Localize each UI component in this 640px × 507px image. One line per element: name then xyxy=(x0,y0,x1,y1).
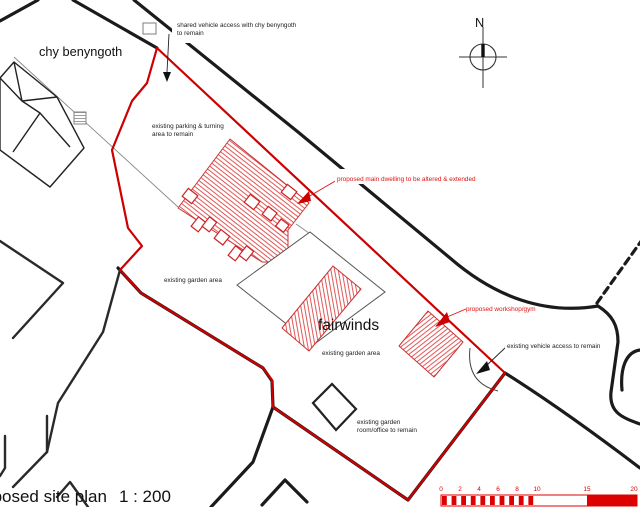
svg-text:proposed site plan1 : 200: proposed site plan1 : 200 xyxy=(0,487,171,506)
scale-tick-0: 0 xyxy=(439,486,443,493)
scale-tick-8: 8 xyxy=(515,486,519,493)
label-vehicle-access: existing vehicle access to remain xyxy=(507,343,601,350)
label-parking-2: area to remain xyxy=(152,131,194,138)
outbuilding-hatched-square xyxy=(74,112,86,124)
drawing-title: proposed site plan1 : 200 xyxy=(0,487,171,506)
scale-tick-20: 20 xyxy=(630,486,638,493)
label-parking-1: existing parking & turning xyxy=(152,123,224,130)
label-main-dwelling: proposed main dwelling to be altered & e… xyxy=(337,176,476,183)
label-shared-access-1: shared vehicle access with chy benyngoth xyxy=(177,22,297,29)
label-garden-room-2: room/office to remain xyxy=(357,427,417,434)
scale-tick-15: 15 xyxy=(583,486,591,493)
label-neighbor-house: chy benyngoth xyxy=(39,44,122,59)
scale-tick-4: 4 xyxy=(477,486,481,493)
title-text: proposed site plan xyxy=(0,487,107,506)
north-needle xyxy=(481,44,484,57)
access-marker-square xyxy=(143,23,156,34)
label-shared-access-2: to remain xyxy=(177,30,204,37)
scale-tick-6: 6 xyxy=(496,486,500,493)
site-plan-canvas: N chy benyngoth shared vehicle access wi… xyxy=(0,0,640,507)
title-scale: 1 : 200 xyxy=(119,487,171,506)
scale-tick-2: 2 xyxy=(458,486,462,493)
label-garden-room-1: existing garden xyxy=(357,419,401,426)
label-workshop: proposed workshop/gym xyxy=(466,306,536,313)
label-site-name: fairwinds xyxy=(318,317,379,334)
label-garden-area-lower: existing garden area xyxy=(322,350,380,357)
scale-tick-10: 10 xyxy=(533,486,541,493)
label-garden-area-upper: existing garden area xyxy=(164,277,222,284)
